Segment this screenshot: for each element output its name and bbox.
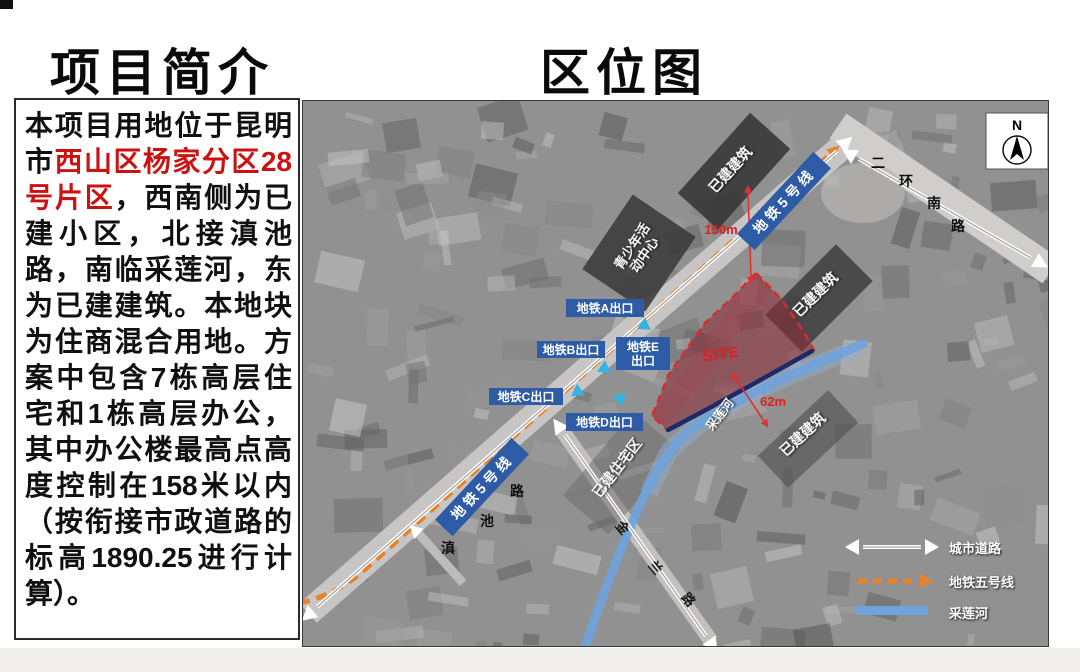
exit-a-label: 地铁A出口 — [577, 301, 634, 316]
erhuan-char-1: 二 — [871, 155, 885, 171]
intro-paragraph: 本项目用地位于昆明市西山区杨家分区28号片区，西南侧为已建小区，北接滇池路，南临… — [25, 108, 292, 612]
exit-e-label-line2: 出口 — [631, 353, 655, 368]
texture-block — [967, 634, 975, 646]
texture-block — [643, 528, 665, 533]
intro-text-after: ，西南侧为已建小区，北接滇池路，南临采莲河，东为已建建筑。本地块为住商混合用地。… — [25, 182, 292, 609]
dianchi-char-3: 路 — [510, 483, 525, 499]
texture-block — [523, 634, 539, 646]
texture-block — [406, 361, 428, 384]
texture-block — [382, 118, 421, 153]
texture-block — [981, 483, 1028, 527]
legend-metro-label: 地铁五号线 — [949, 575, 1014, 590]
slide: 项目简介 区位图 本项目用地位于昆明市西山区杨家分区28号片区，西南侧为已建小区… — [0, 0, 1080, 672]
compass: N — [986, 113, 1048, 169]
erhuan-char-2: 环 — [899, 173, 913, 189]
texture-block — [367, 308, 389, 346]
map-canvas: 150m 62m 地铁5号线 地铁5号线 地铁A出口 地 — [303, 101, 1048, 646]
texture-block — [914, 490, 924, 506]
texture-block — [990, 180, 1038, 212]
texture-block — [475, 641, 486, 646]
texture-block — [827, 571, 850, 597]
page-title-project-intro: 项目简介 — [50, 33, 274, 105]
texture-block — [487, 275, 515, 292]
texture-block — [1035, 505, 1048, 544]
bottom-margin — [0, 648, 1080, 672]
legend-river-label: 采莲河 — [948, 606, 988, 621]
location-map: 150m 62m 地铁5号线 地铁5号线 地铁A出口 地 — [302, 100, 1049, 647]
texture-block — [529, 276, 561, 288]
texture-block — [936, 114, 957, 129]
interchange — [821, 163, 905, 223]
dianchi-char-2: 池 — [480, 513, 494, 529]
texture-block — [381, 445, 409, 479]
texture-block — [405, 586, 444, 620]
texture-block — [475, 191, 507, 217]
exit-b-label: 地铁B出口 — [543, 342, 600, 357]
exit-d-label: 地铁D出口 — [576, 415, 633, 430]
erhuan-char-4: 路 — [951, 218, 966, 234]
texture-block — [984, 338, 998, 346]
erhuan-char-3: 南 — [927, 195, 941, 211]
texture-block — [476, 540, 495, 565]
texture-block — [350, 450, 362, 471]
compass-north-label: N — [1012, 117, 1022, 133]
dianchi-char-1: 滇 — [441, 540, 455, 556]
measure-62m-label: 62m — [760, 394, 786, 409]
texture-block — [544, 200, 593, 229]
texture-block — [501, 223, 539, 257]
texture-block — [947, 341, 971, 362]
exit-e-label-line1: 地铁E — [627, 339, 659, 354]
texture-block — [505, 514, 533, 524]
texture-block — [920, 220, 953, 251]
exit-c-label: 地铁C出口 — [498, 389, 555, 404]
texture-block — [868, 470, 888, 490]
texture-block — [516, 526, 554, 552]
texture-block — [365, 190, 377, 209]
measure-150m-label: 150m — [704, 222, 737, 237]
texture-block — [526, 604, 549, 615]
page-title-location-map: 区位图 — [540, 33, 708, 105]
texture-block — [481, 121, 504, 140]
texture-block — [334, 498, 384, 533]
texture-block — [881, 265, 910, 298]
corner-mark — [0, 0, 13, 9]
legend-river-line — [856, 606, 928, 615]
legend-road-label: 城市道路 — [949, 541, 1002, 556]
texture-block — [406, 173, 448, 185]
intro-panel: 本项目用地位于昆明市西山区杨家分区28号片区，西南侧为已建小区，北接滇池路，南临… — [14, 98, 300, 640]
texture-block — [691, 523, 722, 551]
